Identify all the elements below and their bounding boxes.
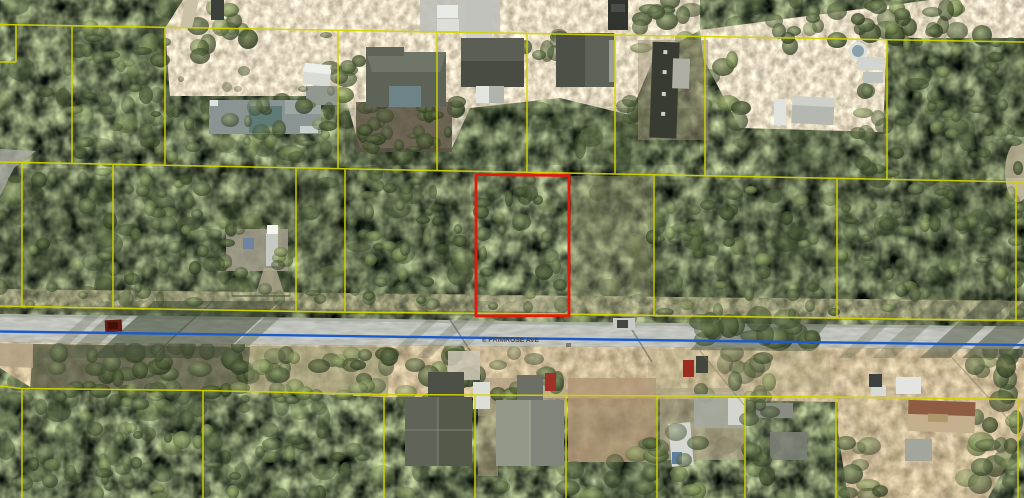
svg-text:E PRIMROSE AVE: E PRIMROSE AVE (482, 337, 540, 345)
